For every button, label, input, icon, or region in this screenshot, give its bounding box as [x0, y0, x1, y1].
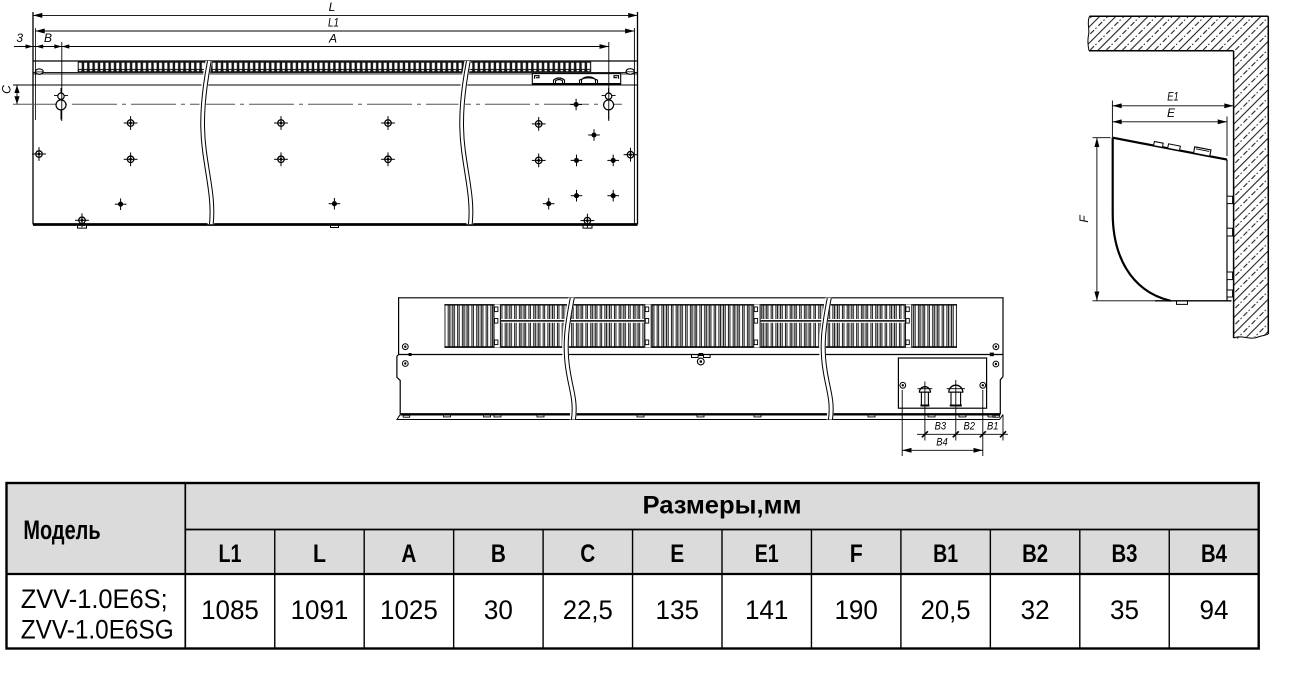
svg-text:ZVV-1.0E6S;: ZVV-1.0E6S; [21, 584, 168, 614]
svg-text:L: L [329, 0, 336, 14]
svg-text:22,5: 22,5 [563, 595, 613, 625]
svg-text:B2: B2 [1022, 540, 1048, 568]
svg-text:B: B [44, 31, 52, 45]
svg-text:A: A [401, 540, 416, 568]
svg-text:E: E [1167, 106, 1176, 120]
svg-text:C: C [0, 85, 14, 94]
svg-text:L: L [313, 540, 326, 568]
svg-text:B3: B3 [935, 421, 947, 433]
svg-text:135: 135 [656, 595, 700, 625]
svg-text:E1: E1 [755, 540, 779, 568]
svg-text:B3: B3 [1112, 540, 1138, 568]
svg-text:F: F [1077, 215, 1091, 223]
svg-text:1025: 1025 [380, 595, 438, 625]
svg-text:C: C [580, 540, 595, 568]
svg-text:B: B [491, 540, 506, 568]
svg-text:94: 94 [1200, 595, 1229, 625]
svg-text:30: 30 [484, 595, 513, 625]
svg-text:35: 35 [1110, 595, 1139, 625]
svg-text:1091: 1091 [291, 595, 349, 625]
svg-text:B4: B4 [1201, 540, 1227, 568]
svg-text:Модель: Модель [23, 515, 100, 545]
svg-text:B4: B4 [936, 437, 948, 449]
svg-text:E1: E1 [1167, 90, 1179, 104]
svg-text:32: 32 [1021, 595, 1050, 625]
svg-text:141: 141 [745, 595, 789, 625]
svg-text:B1: B1 [987, 421, 999, 433]
svg-text:1085: 1085 [201, 595, 259, 625]
svg-text:L1: L1 [219, 540, 242, 568]
svg-text:B2: B2 [964, 421, 976, 433]
svg-text:Размеры,мм: Размеры,мм [643, 492, 802, 520]
svg-text:B1: B1 [933, 540, 958, 568]
svg-text:A: A [328, 32, 337, 46]
svg-text:190: 190 [834, 595, 878, 625]
svg-text:L1: L1 [328, 16, 339, 30]
svg-text:3: 3 [16, 31, 23, 45]
svg-text:20,5: 20,5 [921, 595, 971, 625]
svg-text:F: F [850, 540, 863, 568]
svg-text:ZVV-1.0E6SG: ZVV-1.0E6SG [21, 614, 174, 644]
svg-text:E: E [670, 540, 684, 568]
